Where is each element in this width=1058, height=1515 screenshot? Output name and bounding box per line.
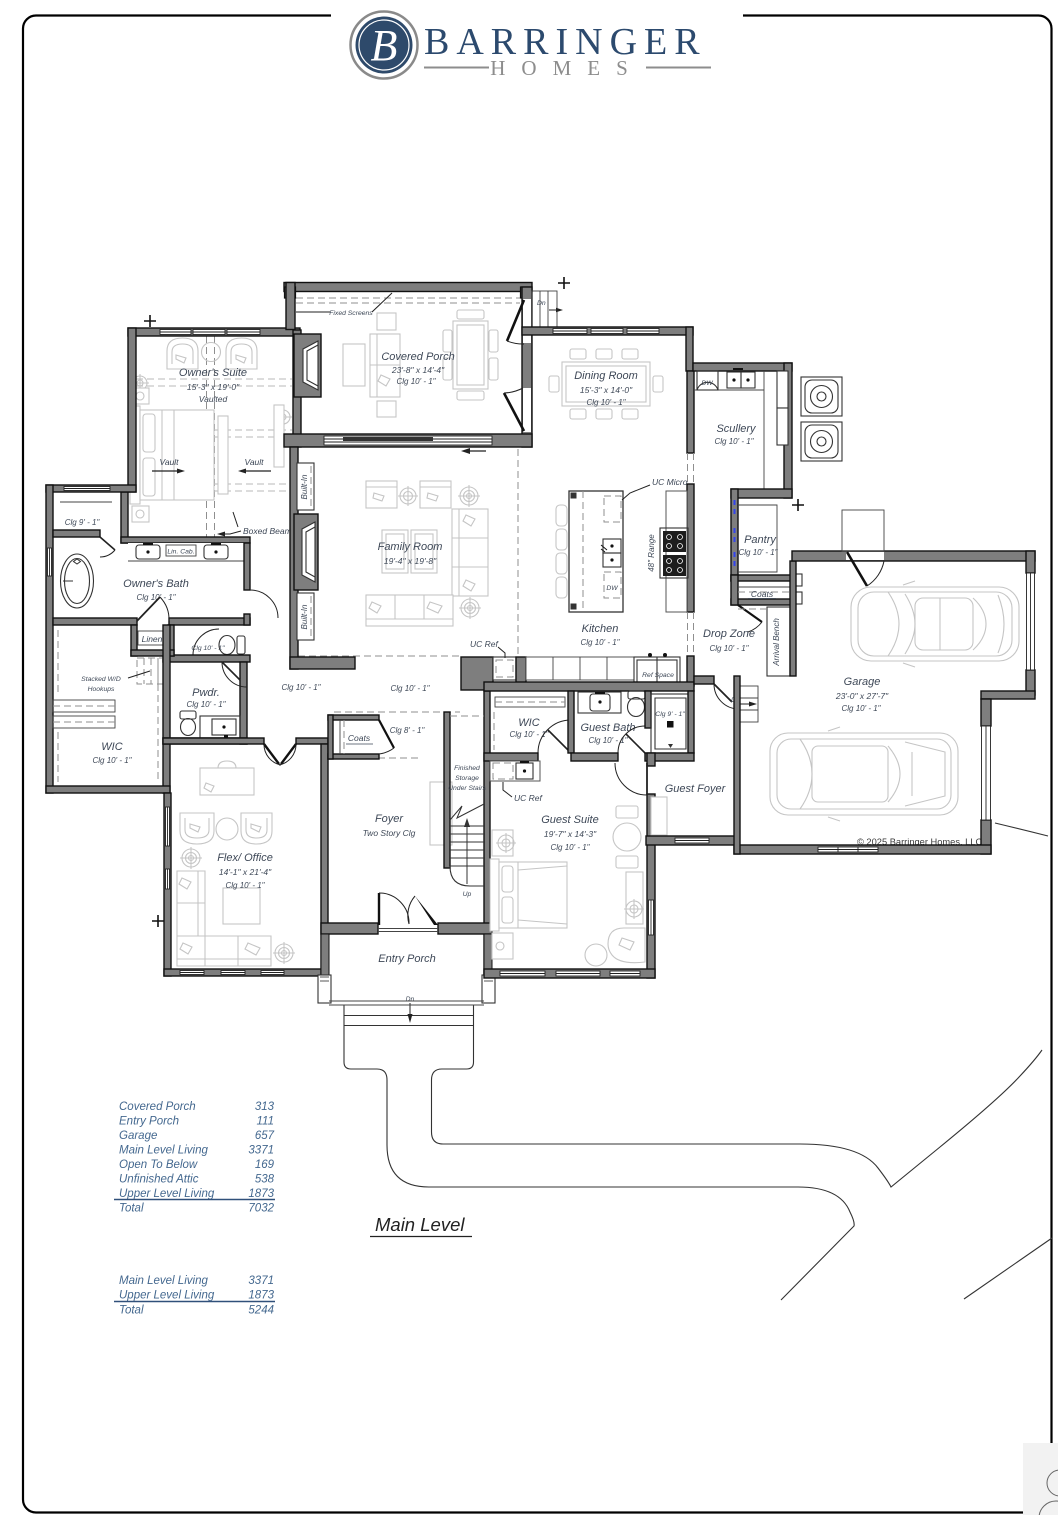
svg-text:Dn: Dn	[537, 300, 546, 307]
svg-text:3371: 3371	[248, 1275, 274, 1287]
svg-text:Clg 10' - 1": Clg 10' - 1"	[550, 843, 590, 852]
svg-text:Clg 9' - 1": Clg 9' - 1"	[65, 518, 101, 527]
svg-text:5244: 5244	[248, 1305, 274, 1317]
svg-text:538: 538	[255, 1174, 275, 1186]
svg-text:Clg 10' - 1": Clg 10' - 1"	[396, 377, 436, 386]
svg-text:Under Stairs: Under Stairs	[448, 785, 486, 792]
svg-text:Built-In: Built-In	[300, 604, 309, 629]
svg-text:Dining Room: Dining Room	[574, 370, 638, 382]
svg-text:Clg 10' - 1": Clg 10' - 1"	[281, 683, 321, 692]
svg-text:111: 111	[257, 1116, 274, 1128]
svg-text:Hookups: Hookups	[88, 686, 115, 693]
svg-text:Ref Space: Ref Space	[642, 672, 674, 679]
svg-text:Boxed Beams: Boxed Beams	[243, 526, 297, 536]
svg-text:Clg 10' - 1": Clg 10' - 1"	[714, 437, 754, 446]
svg-text:Vaulted: Vaulted	[199, 394, 228, 404]
svg-text:Finished: Finished	[454, 765, 480, 772]
svg-text:Lin. Cab.: Lin. Cab.	[167, 549, 194, 556]
svg-text:Main Level Living: Main Level Living	[119, 1275, 208, 1287]
svg-text:Covered Porch: Covered Porch	[381, 351, 454, 363]
svg-text:Entry Porch: Entry Porch	[378, 953, 435, 965]
svg-text:7032: 7032	[248, 1203, 274, 1215]
svg-text:Covered Porch: Covered Porch	[119, 1101, 196, 1113]
svg-text:Total: Total	[119, 1203, 144, 1215]
svg-text:Garage: Garage	[844, 676, 881, 688]
svg-text:Clg 10' - 1": Clg 10' - 1"	[738, 548, 778, 557]
svg-text:Clg 10' - 1": Clg 10' - 1"	[92, 756, 132, 765]
svg-text:B: B	[371, 21, 398, 70]
svg-text:Total: Total	[119, 1305, 144, 1317]
svg-text:Clg 10' - 1": Clg 10' - 1"	[186, 700, 226, 709]
svg-text:Fixed Screens: Fixed Screens	[329, 310, 373, 317]
svg-text:14'-1" x 21'-4": 14'-1" x 21'-4"	[219, 867, 272, 877]
svg-text:Guest Foyer: Guest Foyer	[665, 783, 727, 795]
svg-text:Owner's Bath: Owner's Bath	[123, 578, 189, 590]
svg-text:Two Story Clg: Two Story Clg	[363, 828, 416, 838]
svg-text:Open To Below: Open To Below	[119, 1159, 198, 1171]
svg-text:Clg 10' - 1": Clg 10' - 1"	[586, 398, 626, 407]
svg-text:WIC: WIC	[518, 717, 539, 729]
svg-text:Built-In: Built-In	[300, 474, 309, 499]
svg-text:Storage: Storage	[455, 775, 479, 782]
svg-text:Linen: Linen	[142, 634, 163, 644]
svg-text:1873: 1873	[248, 1290, 274, 1302]
svg-text:Kitchen: Kitchen	[582, 623, 619, 635]
svg-text:UC Ref: UC Ref	[470, 639, 500, 649]
svg-text:Owner's Suite: Owner's Suite	[179, 367, 247, 379]
svg-text:DW: DW	[606, 585, 618, 592]
svg-text:Scullery: Scullery	[716, 423, 757, 435]
svg-text:Up: Up	[463, 891, 472, 898]
svg-text:Entry Porch: Entry Porch	[119, 1116, 179, 1128]
svg-text:23'-0" x 27'-7": 23'-0" x 27'-7"	[835, 691, 889, 701]
svg-text:Coats: Coats	[751, 589, 774, 599]
svg-text:Clg 10' - 1": Clg 10' - 1"	[709, 644, 749, 653]
svg-text:UC Ref: UC Ref	[514, 793, 544, 803]
svg-text:3371: 3371	[248, 1145, 274, 1157]
svg-text:Main Level Living: Main Level Living	[119, 1145, 208, 1157]
svg-text:1873: 1873	[248, 1188, 274, 1200]
svg-text:313: 313	[255, 1101, 275, 1113]
svg-text:Clg 10' - 1": Clg 10' - 1"	[580, 638, 620, 647]
svg-text:Vault: Vault	[159, 457, 179, 467]
svg-text:Drop Zone: Drop Zone	[703, 628, 755, 640]
svg-text:Vault: Vault	[244, 457, 264, 467]
svg-text:Arrival Bench: Arrival Bench	[772, 618, 781, 667]
svg-text:Garage: Garage	[119, 1130, 157, 1142]
svg-text:19'-4" x 19'-8": 19'-4" x 19'-8"	[384, 556, 437, 566]
svg-text:Unfinished Attic: Unfinished Attic	[119, 1174, 199, 1186]
svg-text:23'-8" x 14'-4": 23'-8" x 14'-4"	[391, 365, 445, 375]
svg-text:Dn: Dn	[406, 996, 415, 1003]
svg-text:Clg 10' - 1": Clg 10' - 1"	[390, 684, 430, 693]
svg-text:HOMES: HOMES	[490, 56, 644, 80]
svg-text:Upper Level Living: Upper Level Living	[119, 1290, 215, 1302]
svg-text:Clg 9' - 1": Clg 9' - 1"	[655, 711, 685, 718]
svg-text:657: 657	[255, 1130, 275, 1142]
svg-text:WIC: WIC	[101, 741, 122, 753]
svg-text:UC Micro: UC Micro	[652, 477, 688, 487]
svg-text:DW: DW	[701, 380, 713, 387]
svg-text:Pwdr.: Pwdr.	[192, 687, 220, 699]
svg-text:15'-3" x 19'-0": 15'-3" x 19'-0"	[187, 382, 240, 392]
svg-text:Family Room: Family Room	[378, 541, 443, 553]
svg-text:Coats: Coats	[348, 733, 371, 743]
svg-text:Clg 10' - 1": Clg 10' - 1"	[225, 881, 265, 890]
svg-text:Main Level: Main Level	[375, 1214, 465, 1235]
svg-text:Clg 10' - 1": Clg 10' - 1"	[191, 645, 225, 652]
svg-text:Pantry: Pantry	[744, 534, 777, 546]
svg-text:19'-7" x 14'-3": 19'-7" x 14'-3"	[544, 829, 597, 839]
svg-text:Foyer: Foyer	[375, 813, 404, 825]
svg-text:Flex/ Office: Flex/ Office	[217, 852, 273, 864]
svg-text:Guest Suite: Guest Suite	[541, 814, 598, 826]
svg-text:15'-3" x 14'-0": 15'-3" x 14'-0"	[580, 385, 633, 395]
svg-text:Clg 8' - 1": Clg 8' - 1"	[390, 726, 426, 735]
svg-text:Stacked W/D: Stacked W/D	[81, 676, 121, 683]
svg-text:Clg 10' - 1": Clg 10' - 1"	[841, 704, 881, 713]
svg-text:169: 169	[255, 1159, 275, 1171]
svg-text:48" Range: 48" Range	[647, 534, 656, 572]
svg-text:Upper Level Living: Upper Level Living	[119, 1188, 215, 1200]
